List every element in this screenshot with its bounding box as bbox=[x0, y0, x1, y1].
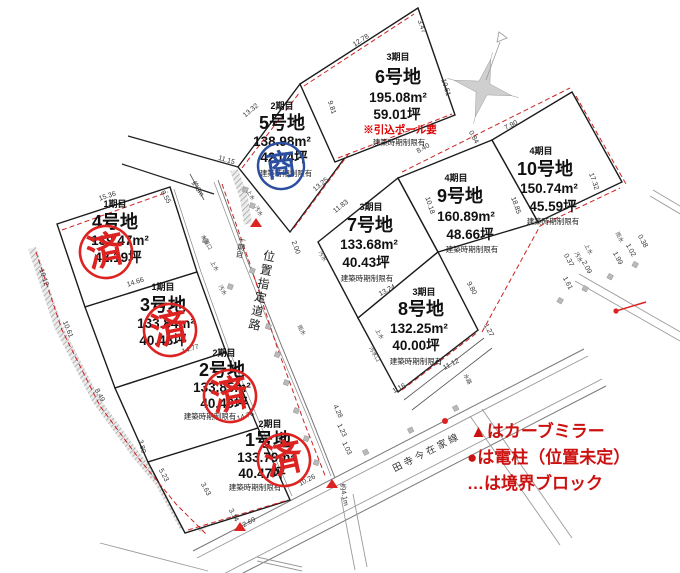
dim-label: 1.61 bbox=[561, 276, 574, 291]
plot-6-pull-pole-note: ※引込ポール要 bbox=[363, 123, 437, 136]
curve-mirror-icon bbox=[326, 479, 338, 488]
plot-1-phase: 2期目 bbox=[258, 418, 281, 429]
plot-8-tsubo: 40.00坪 bbox=[392, 338, 440, 353]
plot-7-tsubo: 40.43坪 bbox=[342, 255, 390, 270]
plot-7-phase: 3期目 bbox=[359, 201, 382, 212]
plot-5-name: 5号地 bbox=[259, 112, 305, 133]
waterway-label: 水路 bbox=[462, 372, 474, 386]
legend: ▲はカーブミラー ●は電柱（位置未定） …は境界ブロック bbox=[467, 421, 630, 493]
utility-label: 上水 bbox=[209, 259, 222, 273]
pending-stamp-text: 商 bbox=[264, 148, 298, 185]
plot-9-area: 160.89m² bbox=[437, 209, 495, 224]
legend-boundary-block: …は境界ブロック bbox=[467, 473, 603, 493]
plot-6-tsubo: 59.01坪 bbox=[373, 107, 421, 122]
dim-label: 1.99 bbox=[611, 251, 624, 266]
plot-8-note: 建築時期制限有 bbox=[390, 356, 443, 366]
dim-label: 1.02 bbox=[624, 243, 637, 258]
plot-2-phase: 2期目 bbox=[212, 347, 235, 358]
plot-10-tsubo: 45.59坪 bbox=[529, 199, 577, 214]
plot-8-name: 8号地 bbox=[398, 298, 444, 319]
dim-label: 4.28 bbox=[331, 404, 343, 419]
dim-label: 0.37 bbox=[562, 253, 575, 268]
central-road-label: 位置指定道路 bbox=[246, 247, 277, 333]
plot-6-phase: 3期目 bbox=[386, 51, 409, 62]
site-plan-svg: 1期目 4号地 139.47m² 42.19坪 1期目 3号地 133.84m²… bbox=[0, 0, 680, 573]
dim-label: 1.27 bbox=[482, 323, 495, 338]
sold-stamp-text: 済 bbox=[207, 371, 254, 420]
utility-label: 上水 bbox=[583, 242, 595, 256]
north-arrow-icon bbox=[447, 32, 518, 124]
dim-label: 2.09 bbox=[580, 260, 593, 275]
plot-9-name: 9号地 bbox=[437, 185, 483, 206]
dim-label: 0.84 bbox=[467, 130, 480, 145]
dim-label: 2.00 bbox=[290, 240, 301, 255]
utility-label: 雨水 bbox=[614, 230, 626, 244]
plot-7-name: 7号地 bbox=[347, 214, 393, 235]
dim-label: 11.83 bbox=[332, 199, 350, 215]
plot-7-note: 建築時期制限有 bbox=[341, 273, 394, 283]
sold-stamp-text: 済 bbox=[261, 435, 308, 484]
plot-8-phase: 3期目 bbox=[412, 286, 435, 297]
utility-label: 水道口 bbox=[199, 233, 214, 251]
plot-9-tsubo: 48.66坪 bbox=[446, 227, 494, 242]
dim-label: 9.80 bbox=[465, 281, 478, 296]
utility-label: 汚水 bbox=[253, 204, 266, 218]
utility-label: 雨水 bbox=[296, 323, 309, 337]
plot-5-area: 138.98m² bbox=[253, 134, 311, 149]
plot-6-area: 195.08m² bbox=[369, 90, 427, 105]
dim-label: 約4.1m bbox=[338, 483, 351, 507]
legend-curve-mirror: ▲はカーブミラー bbox=[470, 421, 605, 441]
plot-3-phase: 1期目 bbox=[151, 281, 174, 292]
dim-label: 11.15 bbox=[217, 155, 235, 166]
plot-6-note: 建築時期制限有 bbox=[373, 137, 426, 147]
dim-label: 約6m bbox=[190, 179, 207, 198]
plot-6-name: 6号地 bbox=[375, 66, 421, 87]
legend-utility-pole: ●は電柱（位置未定） bbox=[467, 447, 630, 467]
plot-9-phase: 4期目 bbox=[444, 172, 467, 183]
dim-label: 1.23 bbox=[335, 423, 347, 438]
plot-10-name: 10号地 bbox=[517, 158, 573, 179]
plot-10-phase: 4期目 bbox=[529, 145, 552, 156]
plot-9-note: 建築時期制限有 bbox=[446, 244, 499, 254]
dim-label: 0.38 bbox=[636, 234, 649, 249]
plot-5-phase: 2期目 bbox=[270, 100, 293, 111]
plot-10-note: 建築時期制限有 bbox=[527, 216, 580, 226]
dim-label: 11.12 bbox=[442, 358, 460, 372]
plot-10-area: 150.74m² bbox=[520, 181, 578, 196]
dim-label: 1.03 bbox=[340, 441, 352, 456]
utility-label: 汚水 bbox=[217, 283, 230, 297]
land-subdivision-map: 1期目 4号地 139.47m² 42.19坪 1期目 3号地 133.84m²… bbox=[0, 0, 680, 573]
plot-7-area: 133.68m² bbox=[340, 237, 398, 252]
dim-label: 13.32 bbox=[242, 102, 260, 119]
utility-pole-icon bbox=[442, 418, 448, 424]
plot-8-area: 132.25m² bbox=[390, 321, 448, 336]
dim-label: 2.69 bbox=[242, 516, 257, 528]
